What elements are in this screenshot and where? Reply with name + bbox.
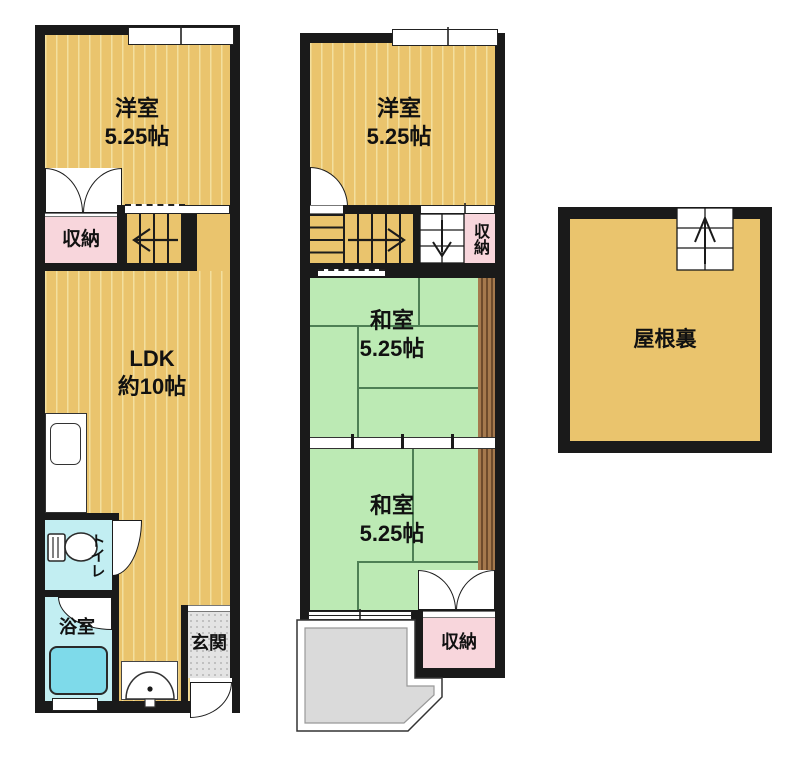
stair-landing-2f <box>310 214 343 263</box>
room-label-1f-bath: 浴室 <box>45 616 109 640</box>
room-label-attic: 屋根裏 <box>590 326 740 354</box>
stairs-2f <box>343 214 413 263</box>
window-2f-balcony <box>308 611 412 620</box>
storage-bottom-track-2f <box>423 611 495 618</box>
room-label-1f-toilet: トイレ <box>86 524 108 586</box>
wall-toilet-bath <box>45 590 119 597</box>
bathtub-icon <box>49 646 108 695</box>
stairs-1f <box>125 214 182 263</box>
room-label-1f-western: 洋室 5.25帖 <box>62 94 212 152</box>
wall-storage-stairs-1f <box>117 205 125 271</box>
room-label-1f-entrance: 玄関 <box>184 632 234 656</box>
wall-right-of-stairs-2f <box>413 214 420 263</box>
wall-under-storage-1f <box>45 263 197 271</box>
room-label-1f-ldk: LDK 約10帖 <box>77 344 227 402</box>
room-label-1f-storage: 収納 <box>47 227 115 253</box>
landing-track-2f <box>310 205 343 214</box>
washbasin-icon <box>121 661 178 700</box>
tatami-line <box>357 561 478 563</box>
room-label-2f-western: 洋室 5.25帖 <box>324 94 474 152</box>
window-bathroom-bottom <box>52 698 98 711</box>
wall-toilet-top <box>45 513 119 520</box>
window-1f-top <box>128 27 234 45</box>
room-label-2f-japanese-1: 和室 5.25帖 <box>317 307 467 363</box>
room-label-2f-storage-top: 収納 <box>466 215 492 263</box>
floor-plan: 洋室 5.25帖 収納 LDK 約10帖 トイレ 浴室 玄関 洋室 5.25帖 … <box>0 0 800 768</box>
window-2f-top <box>392 29 498 46</box>
kitchen-sink-icon <box>50 423 81 465</box>
entrance-step-band <box>188 605 230 612</box>
room-label-2f-storage-bottom: 収納 <box>423 630 495 656</box>
room-label-2f-japanese-2: 和室 5.25帖 <box>317 492 467 548</box>
floor-beside-stairs-1f <box>197 214 230 271</box>
wall-over-stairs-2f <box>343 205 420 214</box>
stairwell-dashed-edge-1f <box>125 204 185 208</box>
tatami-line <box>357 561 359 610</box>
tatami-line <box>357 387 478 389</box>
storage-top-band-2f <box>420 205 495 214</box>
dashed-sill-2f <box>318 269 385 276</box>
